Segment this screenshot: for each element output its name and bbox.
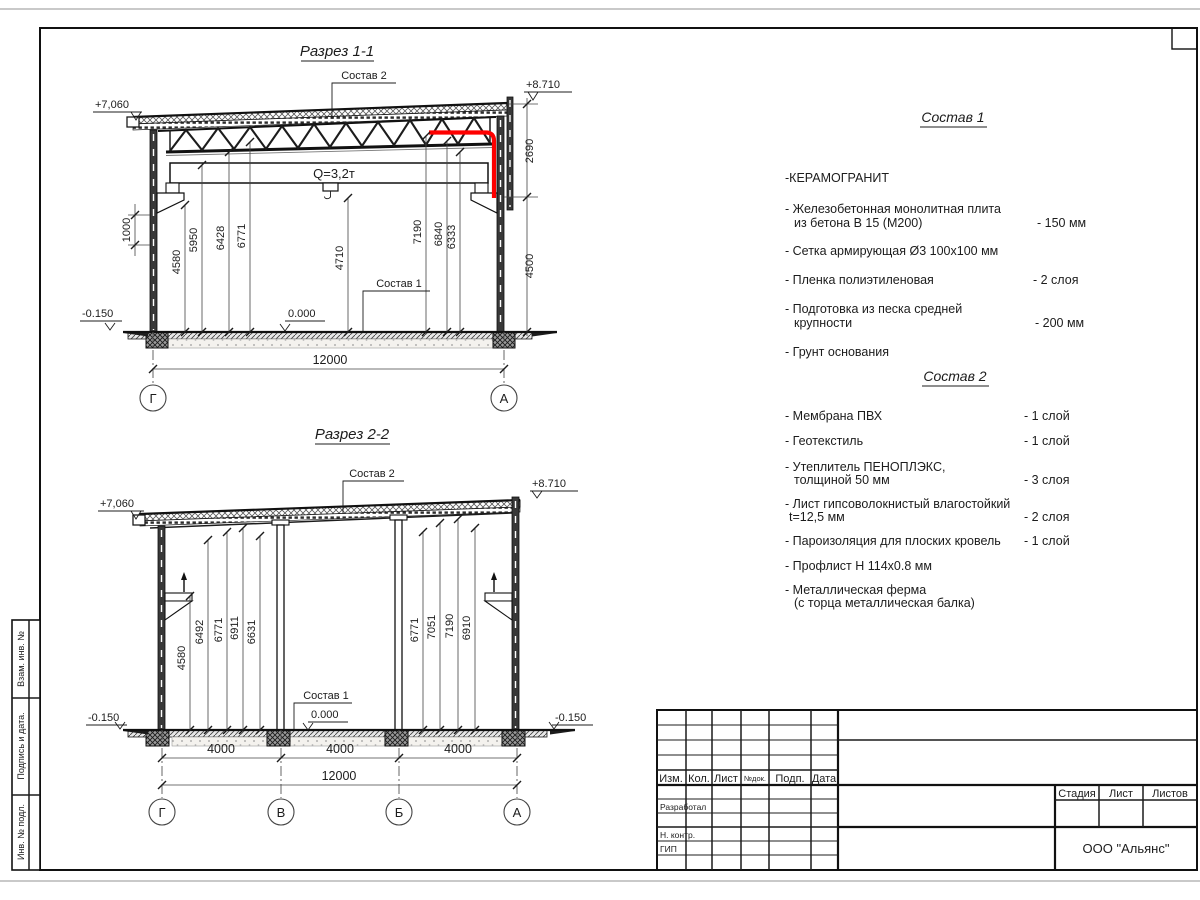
comp1-item: - Железобетонная монолитная плита [785, 202, 1001, 216]
section2-roof [133, 500, 520, 528]
elev-zero: 0.000 [311, 709, 339, 721]
tb-col-ndok: №док. [744, 774, 766, 783]
axis-bubble: А [513, 805, 522, 820]
dim-height: 4580 [171, 250, 183, 274]
dim-height: 4580 [176, 646, 188, 670]
section1-roof [127, 103, 507, 130]
section-1-1: Разрез 1-1 [80, 43, 572, 411]
left-corbel [157, 193, 184, 213]
section1-dim-1000: 1000 [121, 204, 150, 256]
section2-height-dims-left: 4580 6492 6771 6911 6631 [176, 524, 264, 734]
composition-1-list: Состав 1 -КЕРАМОГРАНИТ - Железобетонная … [785, 109, 1086, 359]
comp1-item: -КЕРАМОГРАНИТ [785, 171, 889, 185]
dim-height: 7190 [444, 614, 456, 638]
tb-col-list: Лист [714, 773, 738, 785]
comp2-value: - 1 слой [1024, 409, 1070, 423]
axis-bubble: Г [158, 805, 165, 820]
section2-title: Разрез 2-2 [315, 426, 390, 443]
comp2-item-cont: (с торца металлическая балка) [794, 596, 975, 610]
elev-ground-right: -0.150 [555, 712, 586, 724]
dim-height: 6492 [194, 620, 206, 644]
section1-title: Разрез 1-1 [300, 43, 374, 60]
dim-height: 6771 [213, 618, 225, 642]
comp1-item-cont: крупности [794, 316, 852, 330]
comp2-item: - Лист гипсоволокнистый влагостойкий [785, 497, 1010, 511]
comp1-item: - Пленка полиэтиленовая [785, 273, 934, 287]
dim-2690: 2690 [524, 139, 536, 163]
drawing-canvas: Разрез 1-1 [0, 0, 1200, 900]
dim-bay: 4000 [326, 742, 354, 756]
dim-height: 6771 [409, 618, 421, 642]
dim-height: 6911 [229, 616, 241, 640]
comp1-item-cont: из бетона В 15 (М200) [794, 216, 922, 230]
comp1-value: - 200 мм [1035, 316, 1084, 330]
stamp-inv: Инв. № подл. [16, 804, 26, 860]
column-v [272, 520, 289, 730]
tb-col-podp: Подп. [775, 773, 804, 785]
stamp-podpis: Подпись и дата. [16, 712, 26, 779]
dim-height: 5950 [188, 228, 200, 252]
elev-ground: -0.150 [82, 308, 113, 320]
dim-height: 6333 [446, 225, 458, 249]
comp2-value: - 1 слой [1024, 534, 1070, 548]
comp2-item: - Пароизоляция для плоских кровель [785, 534, 1001, 548]
tb-col-kol: Кол. [688, 773, 710, 785]
comp1-heading: Состав 1 [921, 109, 984, 125]
dim-height: 6840 [433, 222, 445, 246]
comp2-item: - Геотекстиль [785, 434, 863, 448]
comp2-item: - Мембрана ПВХ [785, 409, 883, 423]
dim-bay: 4000 [444, 742, 472, 756]
section-2-2: Разрез 2-2 [86, 426, 593, 825]
elev-eave: +7,060 [95, 99, 129, 111]
dim-height: 4710 [334, 246, 346, 270]
dim-1000: 1000 [121, 218, 133, 242]
dim-height: 6631 [246, 620, 258, 644]
comp1-item: - Сетка армирующая Ø3 100х100 мм [785, 244, 998, 258]
axis-bubble-g: Г [149, 391, 156, 406]
comp2-heading: Состав 2 [923, 368, 986, 384]
comp2-value: - 3 слоя [1024, 473, 1069, 487]
comp2-item-cont: толщиной 50 мм [794, 473, 890, 487]
dim-12000: 12000 [322, 769, 357, 783]
dim-height: 6910 [461, 616, 473, 640]
callout-sostav1: Состав 1 [303, 690, 349, 702]
column-b [390, 515, 407, 730]
tb-stage: Стадия [1058, 788, 1096, 800]
section2-brackets [165, 572, 512, 620]
tb-row-gip: ГИП [660, 844, 677, 854]
comp1-item: - Подготовка из песка средней [785, 302, 962, 316]
callout-sostav2: Состав 2 [341, 70, 387, 82]
comp2-value: - 2 слоя [1024, 510, 1069, 524]
axis-bubble-a: А [500, 391, 509, 406]
tb-company: ООО "Альянс" [1083, 841, 1170, 856]
drawing-sheet: Разрез 1-1 [0, 0, 1200, 900]
stamp-vzam: Взам. инв. № [16, 631, 26, 687]
title-block: Изм. Кол. Лист №док. Подп. Дата Разработ… [657, 710, 1197, 870]
comp2-item: - Профлист Н 114х0.8 мм [785, 559, 932, 573]
elev-eave: +7,060 [100, 498, 134, 510]
composition-2-list: Состав 2 - Мембрана ПВХ - 1 слой - Геоте… [785, 368, 1070, 610]
elev-parapet: +8.710 [532, 478, 566, 490]
dim-height: 7051 [426, 615, 438, 639]
dim-height: 6428 [215, 226, 227, 250]
dim-height: 7190 [412, 220, 424, 244]
tb-row-developed: Разработал [660, 802, 706, 812]
section1-crane-beam: Q=3,2т [157, 163, 497, 213]
dim-12000: 12000 [313, 353, 348, 367]
elev-parapet: +8.710 [526, 79, 560, 91]
comp1-value: - 2 слоя [1033, 273, 1078, 287]
side-stamp: Взам. инв. № Подпись и дата. Инв. № подл… [12, 620, 40, 870]
tb-col-data: Дата [812, 773, 837, 785]
section2-height-dims-right: 6771 7051 7190 6910 [409, 515, 479, 734]
tb-sheet: Лист [1109, 788, 1133, 800]
comp2-value: - 1 слой [1024, 434, 1070, 448]
section1-floor [123, 332, 557, 348]
corner-box [1172, 28, 1197, 49]
comp2-item: - Утеплитель ПЕНОПЛЭКС, [785, 460, 945, 474]
dim-bay: 4000 [207, 742, 235, 756]
comp2-item-cont: t=12,5 мм [789, 510, 845, 524]
dim-4500: 4500 [524, 254, 536, 278]
comp2-item: - Металлическая ферма [785, 583, 926, 597]
elev-ground-left: -0.150 [88, 712, 119, 724]
crane-capacity-label: Q=3,2т [313, 166, 355, 181]
callout-sostav1: Состав 1 [376, 278, 422, 290]
comp1-item: - Грунт основания [785, 345, 889, 359]
axis-bubble: В [277, 805, 286, 820]
elev-zero: 0.000 [288, 308, 316, 320]
dim-height: 6771 [236, 224, 248, 248]
tb-col-izm: Изм. [659, 773, 683, 785]
comp1-value: - 150 мм [1037, 216, 1086, 230]
tb-sheets: Листов [1152, 788, 1188, 800]
callout-sostav2: Состав 2 [349, 468, 395, 480]
tb-row-ncontrol: Н. контр. [660, 830, 695, 840]
axis-bubble: Б [395, 805, 404, 820]
